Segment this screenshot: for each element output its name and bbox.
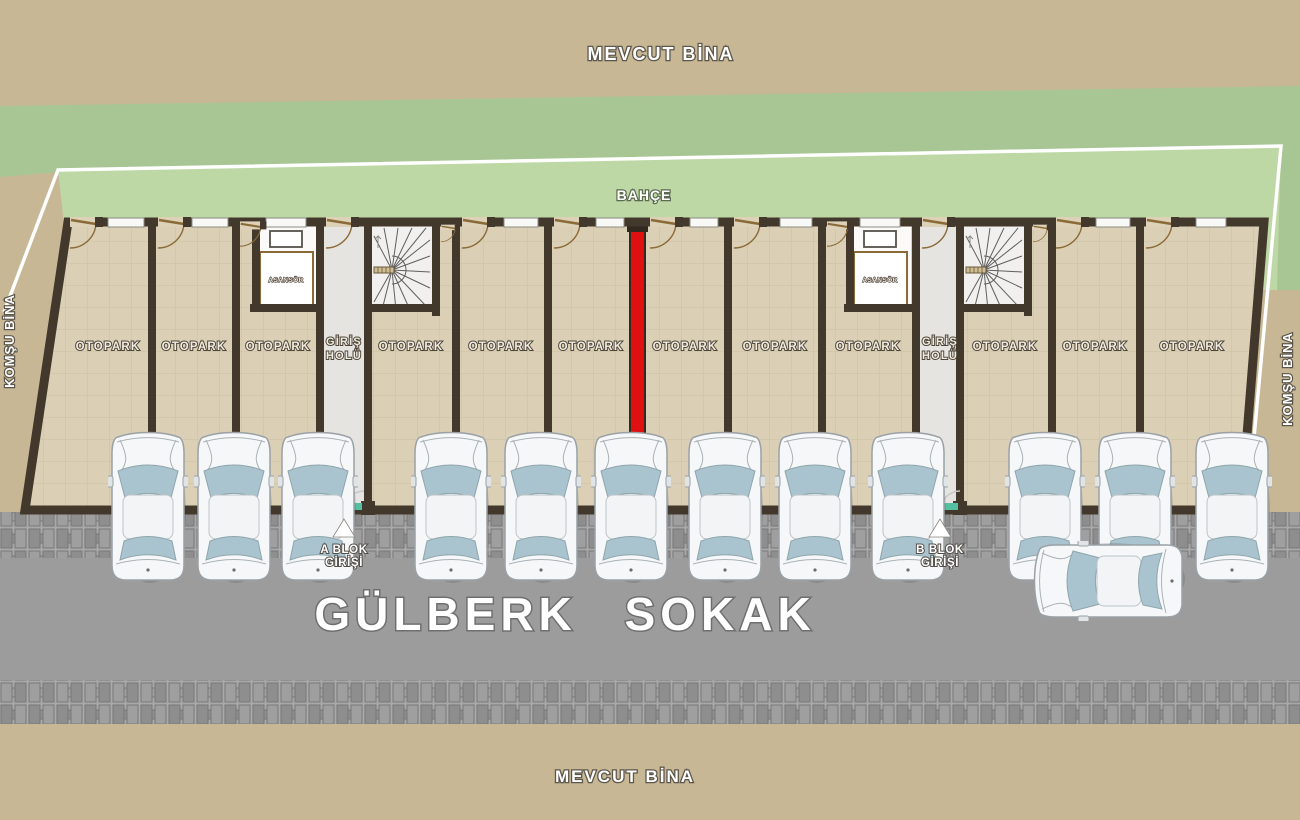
elevator-a <box>256 226 317 312</box>
b-block-entrance-label-line2: GİRİŞİ <box>921 556 959 569</box>
hall-a-label-line2: HOLÜ <box>326 349 362 362</box>
top-neighbor-label: MEVCUT BİNA <box>588 44 735 64</box>
right-neighbor-label: KOMŞU BİNA <box>1280 332 1295 426</box>
car-icon <box>1191 433 1273 584</box>
a-block-entrance-label-line1: A BLOK <box>320 544 367 556</box>
car-icon <box>774 433 856 584</box>
car-icon <box>500 433 582 584</box>
otopark-label-5: OTOPARK <box>469 341 534 353</box>
otopark-label-1: OTOPARK <box>76 341 141 353</box>
otopark-label-8: OTOPARK <box>743 341 808 353</box>
b-block-entrance-label-line1: B BLOK <box>916 544 964 556</box>
hall-b-label-line2: HOLÜ <box>922 349 958 362</box>
car-icon <box>107 433 189 584</box>
otopark-label-4: OTOPARK <box>379 341 444 353</box>
bottom-neighbor-label: MEVCUT BİNA <box>555 767 695 786</box>
street-car-icon <box>1035 540 1186 622</box>
stairs-a-icon <box>372 226 432 312</box>
otopark-label-3: OTOPARK <box>246 341 311 353</box>
garden-label: BAHÇE <box>617 187 672 203</box>
otopark-label-9: OTOPARK <box>836 341 901 353</box>
street-name-label: GÜLBERK SOKAK <box>314 588 815 640</box>
car-icon <box>193 433 275 584</box>
car-icon <box>590 433 672 584</box>
elevator-a-label: ASANSÖR <box>268 275 303 284</box>
elevator-b-label: ASANSÖR <box>862 275 897 284</box>
site-plan-svg: MEVCUT BİNA BAHÇE MEVCUT BİNA KOMŞU BİNA… <box>0 0 1300 820</box>
site-plan-drawing: MEVCUT BİNA BAHÇE MEVCUT BİNA KOMŞU BİNA… <box>0 0 1300 820</box>
sidewalk-bottom <box>0 680 1300 724</box>
otopark-label-11: OTOPARK <box>1063 341 1128 353</box>
a-block-entrance-label-line2: GİRİŞİ <box>325 556 363 569</box>
otopark-label-2: OTOPARK <box>162 341 227 353</box>
otopark-label-10: OTOPARK <box>973 341 1038 353</box>
otopark-label-7: OTOPARK <box>653 341 718 353</box>
hall-b-label-line1: GİRİŞ <box>922 335 958 348</box>
otopark-label-6: OTOPARK <box>559 341 624 353</box>
car-icon <box>410 433 492 584</box>
otopark-label-12: OTOPARK <box>1160 341 1225 353</box>
left-neighbor-label: KOMŞU BİNA <box>2 294 17 388</box>
stairs-b-icon <box>964 226 1024 312</box>
hall-a-label-line1: GİRİŞ <box>326 335 362 348</box>
car-icon <box>684 433 766 584</box>
elevator-b <box>850 226 911 312</box>
